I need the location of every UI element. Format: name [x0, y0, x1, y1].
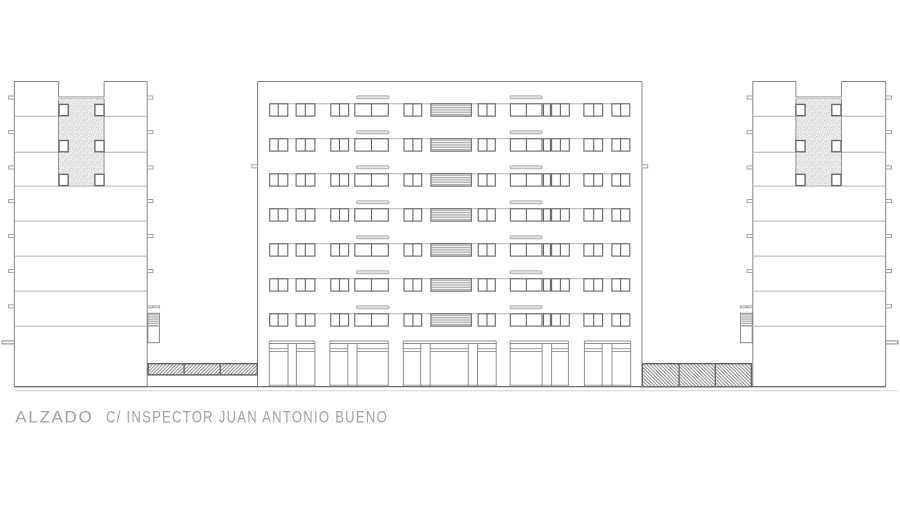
svg-text:ALZADO: ALZADO	[15, 409, 93, 427]
svg-text:C/ INSPECTOR JUAN ANTONIO BUEN: C/ INSPECTOR JUAN ANTONIO BUENO	[106, 409, 388, 427]
